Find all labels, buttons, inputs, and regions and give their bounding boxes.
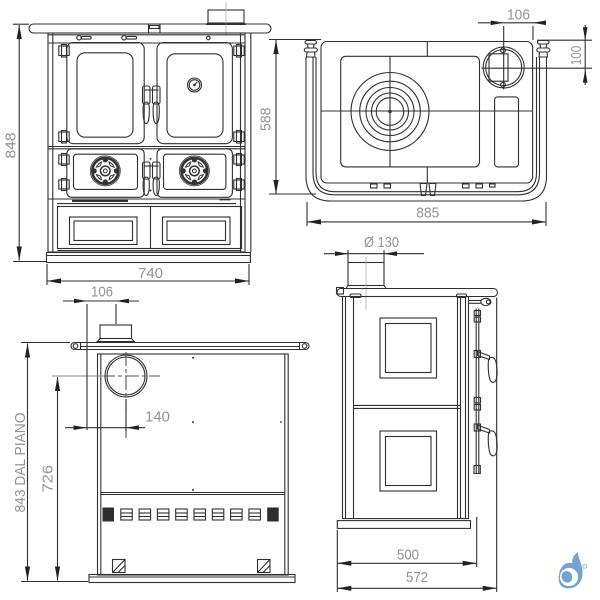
svg-text:140: 140: [145, 409, 170, 426]
svg-text:500: 500: [397, 547, 419, 564]
svg-text:740: 740: [138, 265, 163, 282]
svg-text:Ø 130: Ø 130: [364, 234, 399, 251]
svg-text:106: 106: [91, 284, 113, 301]
svg-text:106: 106: [507, 7, 530, 24]
svg-text:726: 726: [40, 465, 57, 493]
svg-text:843 DAL PIANO: 843 DAL PIANO: [12, 413, 29, 513]
svg-text:572: 572: [406, 569, 428, 586]
svg-text:885: 885: [416, 205, 439, 222]
svg-text:588: 588: [258, 108, 275, 132]
svg-text:100: 100: [568, 46, 585, 66]
svg-text:848: 848: [3, 133, 20, 159]
